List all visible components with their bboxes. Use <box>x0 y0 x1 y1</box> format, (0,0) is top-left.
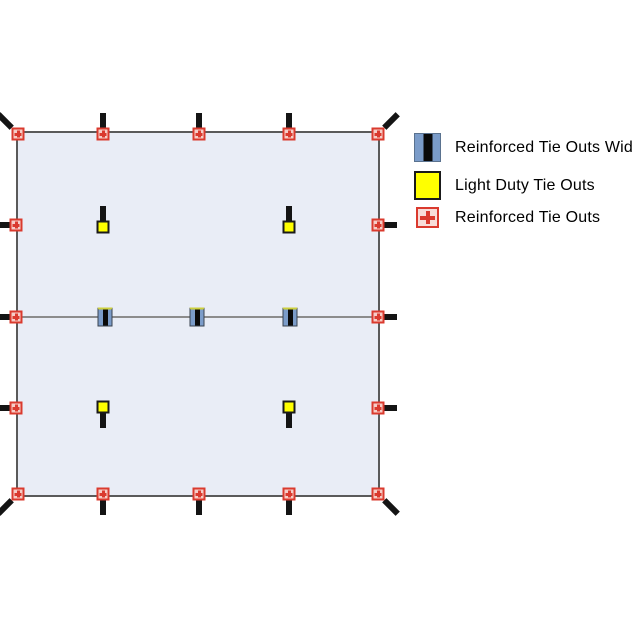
reinforced-tie-out-square <box>283 488 296 501</box>
reinforced-tie-out-square <box>372 128 385 141</box>
tie-out-stick <box>383 222 397 228</box>
reinforced-tie-out-square <box>12 128 25 141</box>
tie-out-stick <box>196 499 202 515</box>
light-tie-out-square <box>283 221 296 234</box>
reinforced-tie-out-square <box>283 128 296 141</box>
reinforced-tie-out-square <box>97 128 110 141</box>
tie-out-stick <box>100 412 106 428</box>
light-duty-tie-out-icon <box>414 171 441 200</box>
light-tie-out-square <box>283 401 296 414</box>
tie-out-stick <box>286 412 292 428</box>
tie-out-stick <box>100 499 106 515</box>
tie-out-stick <box>383 314 397 320</box>
wide-tie-out-square <box>98 308 113 327</box>
tie-out-stick <box>382 498 400 516</box>
tarp-tie-out-diagram: Reinforced Tie Outs Wide Light Duty Tie … <box>0 0 632 632</box>
reinforced-tie-out-square <box>372 311 385 324</box>
reinforced-tie-out-square <box>10 219 23 232</box>
reinforced-tie-out-icon <box>416 207 439 228</box>
light-tie-out-square <box>97 401 110 414</box>
legend-item-reinforced: Reinforced Tie Outs <box>414 207 600 228</box>
tie-out-stick <box>0 498 14 516</box>
reinforced-tie-out-square <box>193 128 206 141</box>
reinforced-tie-out-square <box>372 402 385 415</box>
wide-tie-out-square <box>283 308 298 327</box>
tie-out-stick <box>382 112 400 130</box>
wide-tie-out-icon <box>414 133 441 162</box>
reinforced-tie-out-square <box>12 488 25 501</box>
legend-label-reinforced-wide: Reinforced Tie Outs Wide <box>455 139 632 157</box>
light-tie-out-square <box>97 221 110 234</box>
reinforced-tie-out-square <box>372 488 385 501</box>
wide-tie-out-square <box>190 308 205 327</box>
tie-out-stick <box>383 405 397 411</box>
reinforced-tie-out-square <box>193 488 206 501</box>
legend-item-reinforced-wide: Reinforced Tie Outs Wide <box>414 133 632 162</box>
legend-label-light-duty: Light Duty Tie Outs <box>455 177 595 195</box>
reinforced-tie-out-square <box>10 311 23 324</box>
tie-out-stick <box>286 499 292 515</box>
reinforced-tie-out-square <box>372 219 385 232</box>
reinforced-tie-out-square <box>97 488 110 501</box>
legend-label-reinforced: Reinforced Tie Outs <box>455 209 600 227</box>
reinforced-tie-out-square <box>10 402 23 415</box>
legend-item-light-duty: Light Duty Tie Outs <box>414 171 595 200</box>
